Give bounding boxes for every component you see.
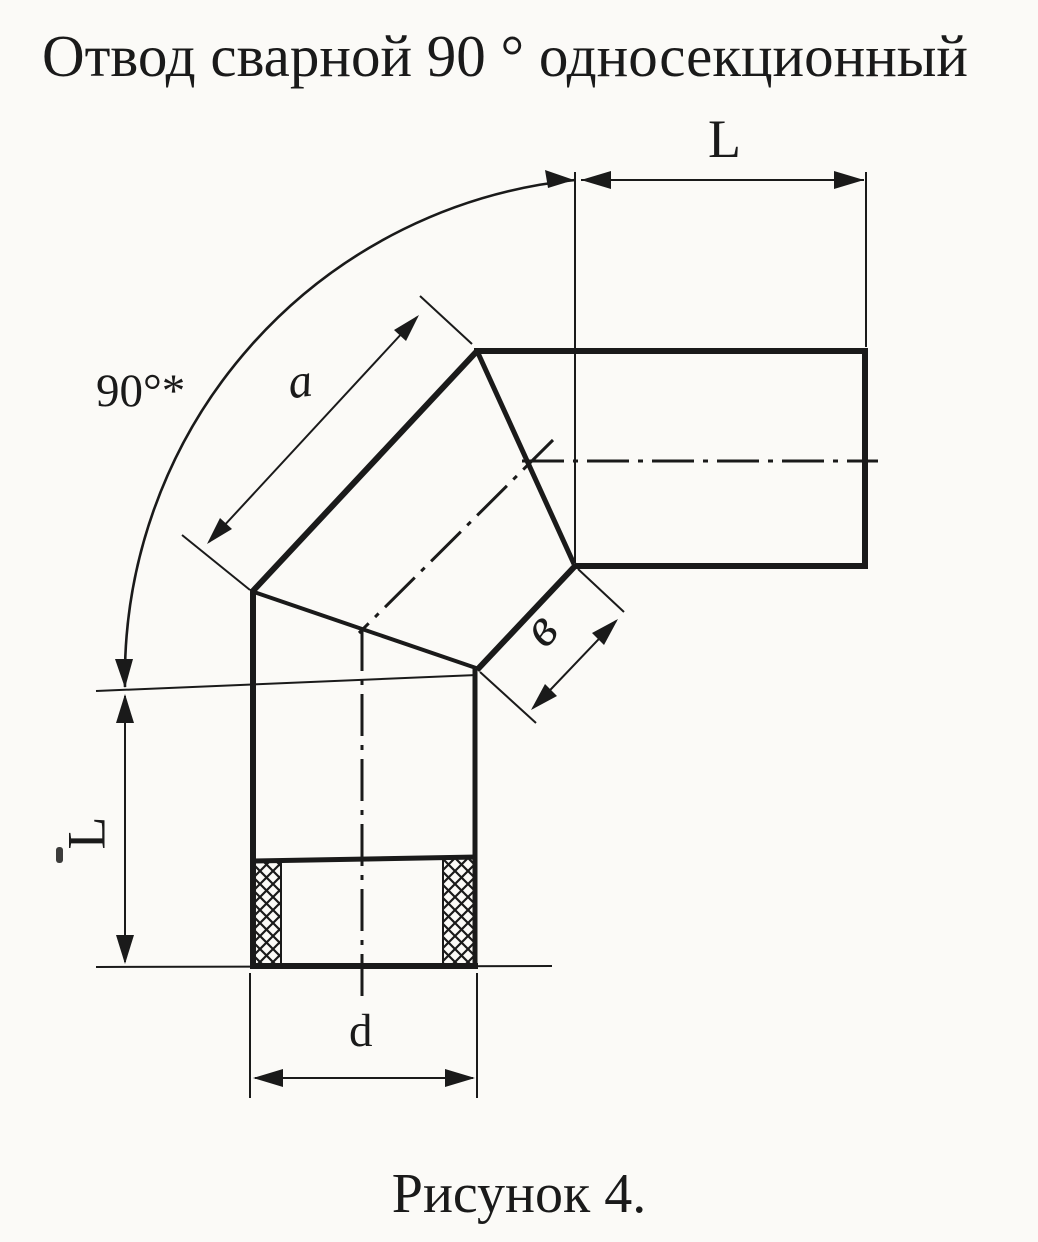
label-diameter: d xyxy=(349,1008,373,1055)
label-left-length: L xyxy=(60,817,114,850)
sleeve-hatch-right xyxy=(443,859,474,965)
weld-seam-lower xyxy=(254,592,476,668)
ext-line-left-top xyxy=(96,675,477,691)
scan-artifact xyxy=(56,847,63,863)
scanned-drawing-page: Отвод сварной 90 ° односекционный xyxy=(0,0,1038,1242)
elbow-outline xyxy=(250,349,868,968)
label-top-length: L xyxy=(708,112,741,166)
ext-line-a-top xyxy=(420,296,472,344)
figure-caption: Рисунок 4. xyxy=(0,1162,1038,1226)
dim-arrow-left-L-top xyxy=(116,694,134,723)
angle-arc xyxy=(125,180,575,687)
sleeve-section xyxy=(252,857,477,965)
angle-arc-arrow-bottom xyxy=(115,659,133,688)
label-angle: 90°* xyxy=(96,368,185,415)
dim-line-a xyxy=(209,317,417,542)
dim-arrow-d-left xyxy=(253,1069,283,1087)
dim-arrow-right xyxy=(834,171,864,189)
ext-line-v-bottom xyxy=(480,672,536,723)
centerlines xyxy=(359,440,878,998)
miter-outer-edge xyxy=(252,350,478,592)
dim-angle-arc xyxy=(115,170,575,688)
angle-arc-arrow-top xyxy=(545,170,574,188)
ext-line-a-bottom xyxy=(182,535,250,590)
ext-line-left-bottom xyxy=(96,966,552,967)
dim-segment-length xyxy=(182,296,472,590)
weld-seam-upper xyxy=(478,353,574,564)
dim-arrow-left xyxy=(581,171,611,189)
dim-left-length xyxy=(96,675,552,967)
dim-top-length xyxy=(575,171,866,562)
dim-arrow-left-L-bottom xyxy=(116,935,134,964)
ext-line-v-top xyxy=(578,569,624,612)
dim-arrow-d-right xyxy=(445,1069,475,1087)
sleeve-hatch-left xyxy=(254,861,281,965)
